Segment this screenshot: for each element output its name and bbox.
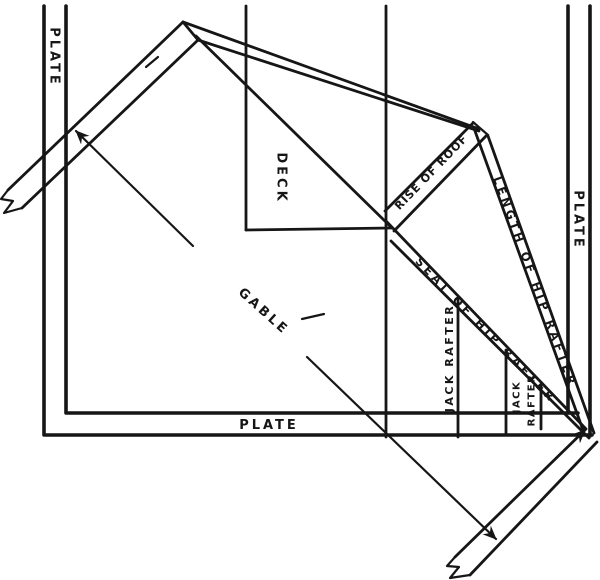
rafter-tick-mark	[146, 57, 158, 67]
jack-rafter-long-label: JACK RAFTER	[443, 304, 456, 414]
rafter-edge-top	[8, 22, 183, 190]
rise-edge-right	[394, 136, 486, 231]
hip-board-edge-bottom	[470, 442, 597, 575]
hip-rafter-board	[447, 430, 597, 578]
ridge-bottom-line	[198, 40, 479, 131]
plate-left-label: PLATE	[47, 27, 62, 87]
common-rafter-board	[1, 22, 198, 213]
ridge-lines	[183, 22, 479, 228]
arrow-to-hip-rafter	[307, 357, 496, 539]
plate-right-label: PLATE	[571, 190, 586, 250]
deck-bottom-line	[246, 228, 392, 230]
deck-label: DECK	[274, 152, 289, 203]
hip-board-edge-top	[455, 430, 585, 557]
plate-bottom-label: PLATE	[239, 418, 299, 433]
rise-of-roof-label: RISE OF ROOF	[392, 132, 470, 212]
roof-framing-diagram: PLATE PLATE PLATE DECK GABLE RISE OF ROO…	[0, 0, 600, 580]
gable-leader-dash	[302, 314, 324, 319]
rafter-torn-end	[1, 190, 22, 213]
rise-of-roof-band	[385, 122, 488, 231]
gable-label: GABLE	[235, 285, 292, 338]
arrow-to-common-rafter	[76, 131, 193, 246]
hip-board-torn-end	[447, 557, 470, 578]
peak-to-deck-corner-line	[196, 36, 392, 228]
jack-rafter-short-label-line2: RAFTER	[527, 374, 538, 427]
ridge-top-line	[183, 22, 479, 129]
diagram-canvas: PLATE PLATE PLATE DECK GABLE RISE OF ROO…	[0, 0, 600, 580]
jack-rafter-short-label-line1: JACK	[512, 381, 523, 415]
